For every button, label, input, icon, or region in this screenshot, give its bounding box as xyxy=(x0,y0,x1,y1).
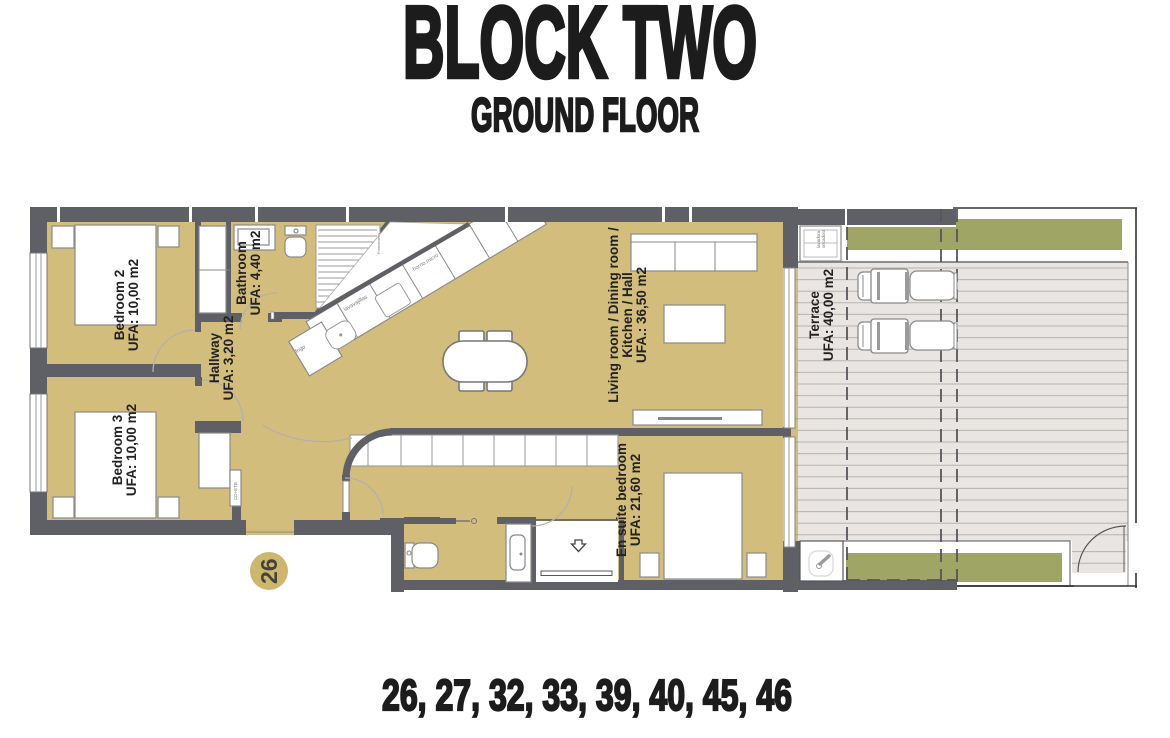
svg-text:26, 27, 32, 33, 39, 40, 45, 46: 26, 27, 32, 33, 39, 40, 45, 46 xyxy=(382,671,792,720)
svg-text:GROUND FLOOR: GROUND FLOOR xyxy=(471,88,699,141)
svg-text:UFA: 10,00 m2: UFA: 10,00 m2 xyxy=(126,259,141,351)
svg-text:26: 26 xyxy=(256,558,282,584)
svg-text:Kitchen / Hall: Kitchen / Hall xyxy=(620,272,635,358)
svg-text:En suite bedroom: En suite bedroom xyxy=(614,443,629,557)
svg-text:Bathroom: Bathroom xyxy=(234,241,249,305)
svg-text:BLOCK TWO: BLOCK TWO xyxy=(403,0,757,99)
svg-text:UFA: 4,40 m2: UFA: 4,40 m2 xyxy=(248,231,263,316)
svg-text:Bedroom 3: Bedroom 3 xyxy=(110,414,125,485)
svg-text:UFA: 10,00 m2: UFA: 10,00 m2 xyxy=(124,404,139,496)
svg-text:UFA.: 36,50 m2: UFA.: 36,50 m2 xyxy=(634,267,649,363)
svg-text:UFA: 3,20 m2: UFA: 3,20 m2 xyxy=(221,316,236,401)
svg-text:Formentera: Formentera xyxy=(376,233,381,254)
svg-text:CD+ETB: CD+ETB xyxy=(233,482,238,500)
svg-text:Living room / Dining room /: Living room / Dining room / xyxy=(606,227,621,403)
svg-text:Terrace: Terrace xyxy=(807,291,822,339)
svg-text:Bedroom 2: Bedroom 2 xyxy=(112,270,127,341)
svg-text:secadora: secadora xyxy=(821,229,826,248)
svg-text:UFA: 40,00 m2: UFA: 40,00 m2 xyxy=(821,269,836,361)
svg-text:UFA: 21,60 m2: UFA: 21,60 m2 xyxy=(628,454,643,546)
svg-text:Hallway: Hallway xyxy=(207,332,222,383)
